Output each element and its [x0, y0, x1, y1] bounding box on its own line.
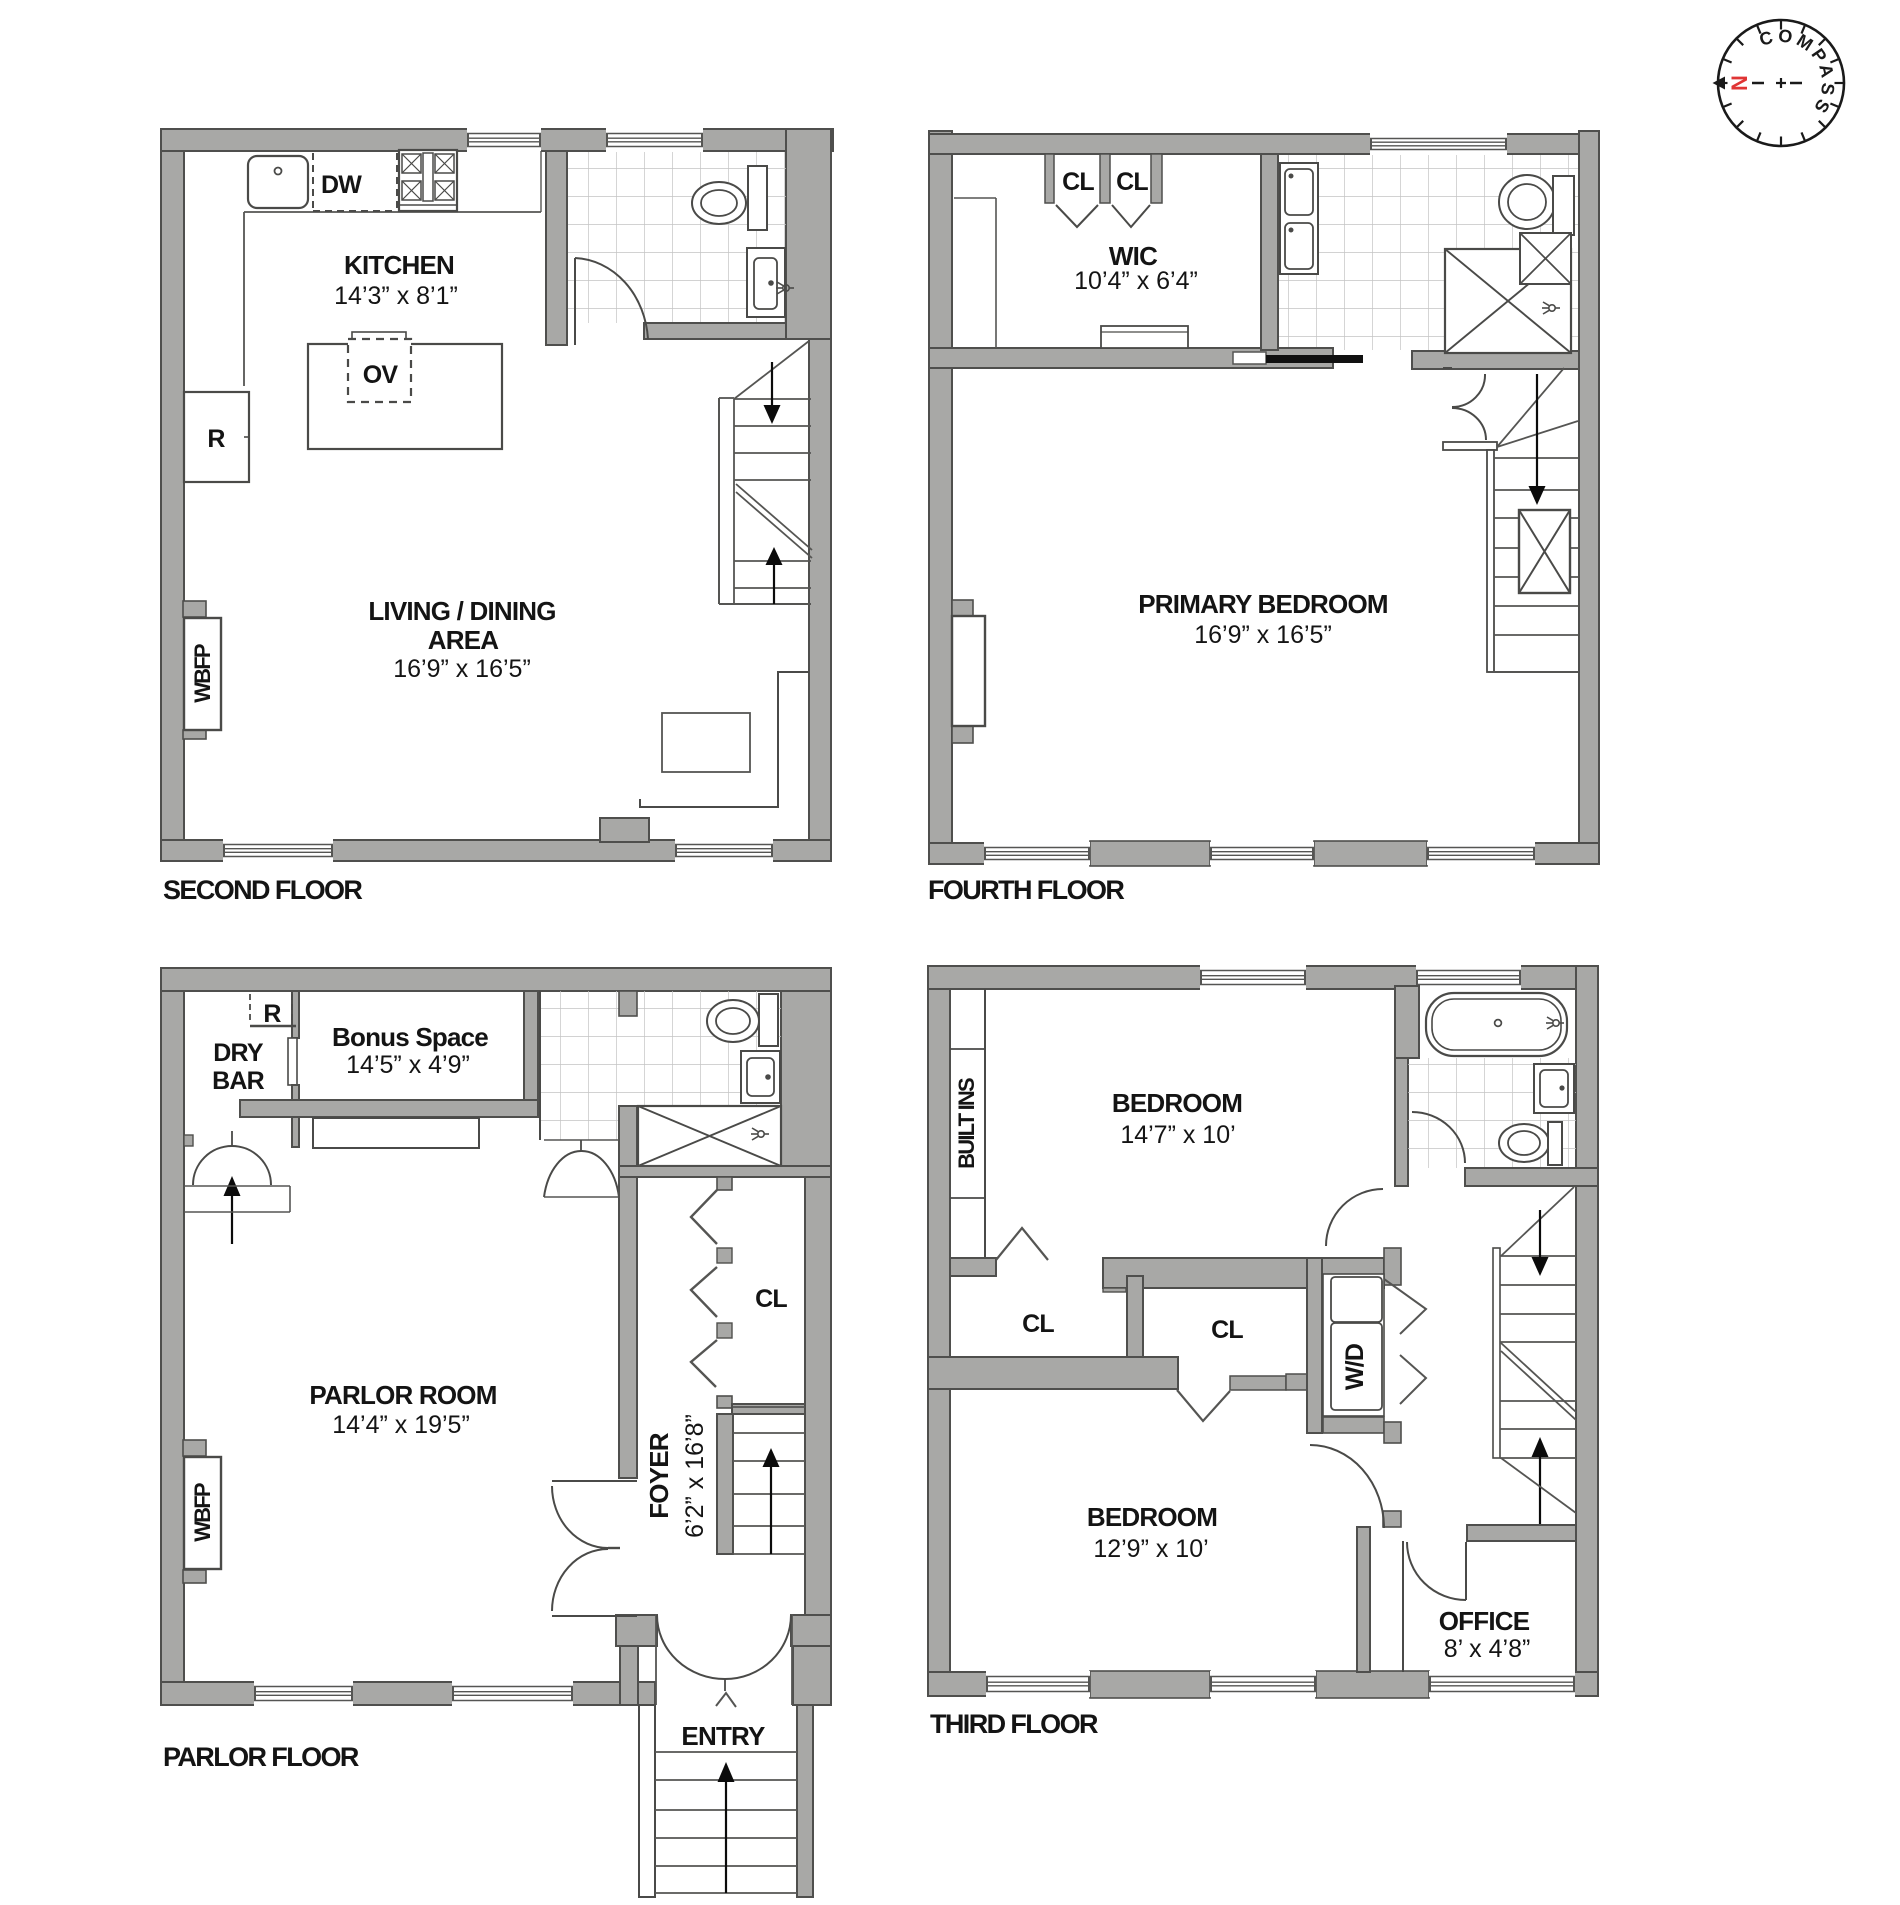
svg-text:BUILT INS: BUILT INS	[954, 1078, 979, 1169]
svg-text:Bonus Space: Bonus Space	[332, 1022, 488, 1052]
svg-text:THIRD FLOOR: THIRD FLOOR	[930, 1709, 1098, 1739]
svg-text:R: R	[207, 425, 225, 453]
svg-text:16’9” x 16’5”: 16’9” x 16’5”	[1194, 621, 1332, 649]
svg-text:WBFP: WBFP	[190, 1483, 215, 1542]
svg-text:DRY: DRY	[213, 1039, 264, 1067]
svg-text:CL: CL	[1116, 168, 1148, 196]
svg-text:PARLOR ROOM: PARLOR ROOM	[309, 1380, 496, 1410]
svg-text:AREA: AREA	[428, 625, 499, 655]
svg-text:CL: CL	[755, 1285, 787, 1313]
svg-text:BEDROOM: BEDROOM	[1112, 1088, 1242, 1118]
svg-text:OFFICE: OFFICE	[1439, 1606, 1530, 1636]
svg-text:OV: OV	[363, 361, 399, 389]
svg-text:KITCHEN: KITCHEN	[344, 250, 454, 280]
svg-text:SECOND FLOOR: SECOND FLOOR	[163, 875, 362, 905]
svg-text:CL: CL	[1062, 168, 1094, 196]
svg-text:DW: DW	[321, 171, 362, 199]
svg-text:R: R	[263, 1000, 281, 1028]
svg-text:WBFP: WBFP	[190, 644, 215, 703]
svg-text:FOURTH FLOOR: FOURTH FLOOR	[928, 875, 1124, 905]
svg-text:FOYER: FOYER	[644, 1432, 674, 1519]
svg-text:6’2” x 16’8”: 6’2” x 16’8”	[681, 1414, 709, 1538]
svg-text:CL: CL	[1022, 1310, 1054, 1338]
svg-text:14’3” x 8’1”: 14’3” x 8’1”	[334, 282, 458, 310]
svg-text:W/D: W/D	[1341, 1344, 1369, 1390]
svg-text:BAR: BAR	[212, 1067, 265, 1095]
svg-text:12’9” x 10’: 12’9” x 10’	[1093, 1535, 1208, 1563]
svg-text:10’4” x 6’4”: 10’4” x 6’4”	[1074, 267, 1198, 295]
svg-text:14’7” x 10’: 14’7” x 10’	[1120, 1121, 1235, 1149]
svg-text:BEDROOM: BEDROOM	[1087, 1502, 1217, 1532]
svg-text:PRIMARY BEDROOM: PRIMARY BEDROOM	[1138, 589, 1387, 619]
svg-text:N: N	[1727, 75, 1752, 91]
svg-text:PARLOR FLOOR: PARLOR FLOOR	[163, 1742, 359, 1772]
svg-text:16’9” x 16’5”: 16’9” x 16’5”	[393, 655, 531, 683]
svg-text:ENTRY: ENTRY	[681, 1721, 765, 1751]
svg-text:8’ x 4’8”: 8’ x 4’8”	[1444, 1635, 1531, 1663]
svg-text:14’5” x 4’9”: 14’5” x 4’9”	[346, 1051, 470, 1079]
svg-text:LIVING / DINING: LIVING / DINING	[368, 596, 555, 626]
svg-text:14’4” x 19’5”: 14’4” x 19’5”	[332, 1411, 470, 1439]
svg-text:CL: CL	[1211, 1316, 1243, 1344]
